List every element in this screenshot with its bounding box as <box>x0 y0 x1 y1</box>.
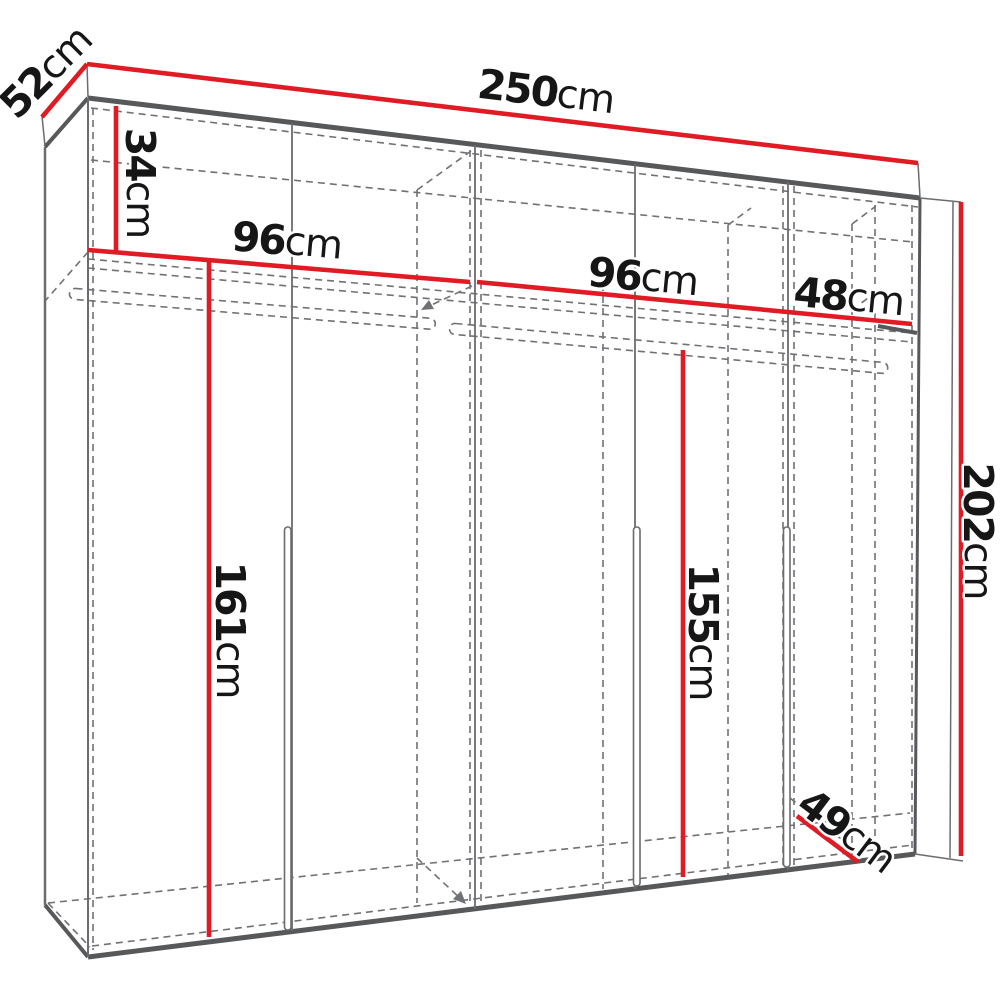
label-hanging-right-height: 155cm <box>679 563 727 700</box>
wardrobe-dimension-diagram: 52cm 250cm 34cm 96cm 96cm 48cm 202cm 161… <box>0 0 1000 1000</box>
dimension-tick <box>87 64 88 97</box>
door-handle-left <box>285 527 292 930</box>
diagram-canvas: 52cm 250cm 34cm 96cm 96cm 48cm 202cm 161… <box>0 0 1000 1000</box>
label-height-total: 202cm <box>954 462 1000 599</box>
label-top-shelf-height: 34cm <box>116 128 164 239</box>
label-hanging-left-height: 161cm <box>206 561 254 698</box>
door-handle-middle <box>634 527 641 886</box>
